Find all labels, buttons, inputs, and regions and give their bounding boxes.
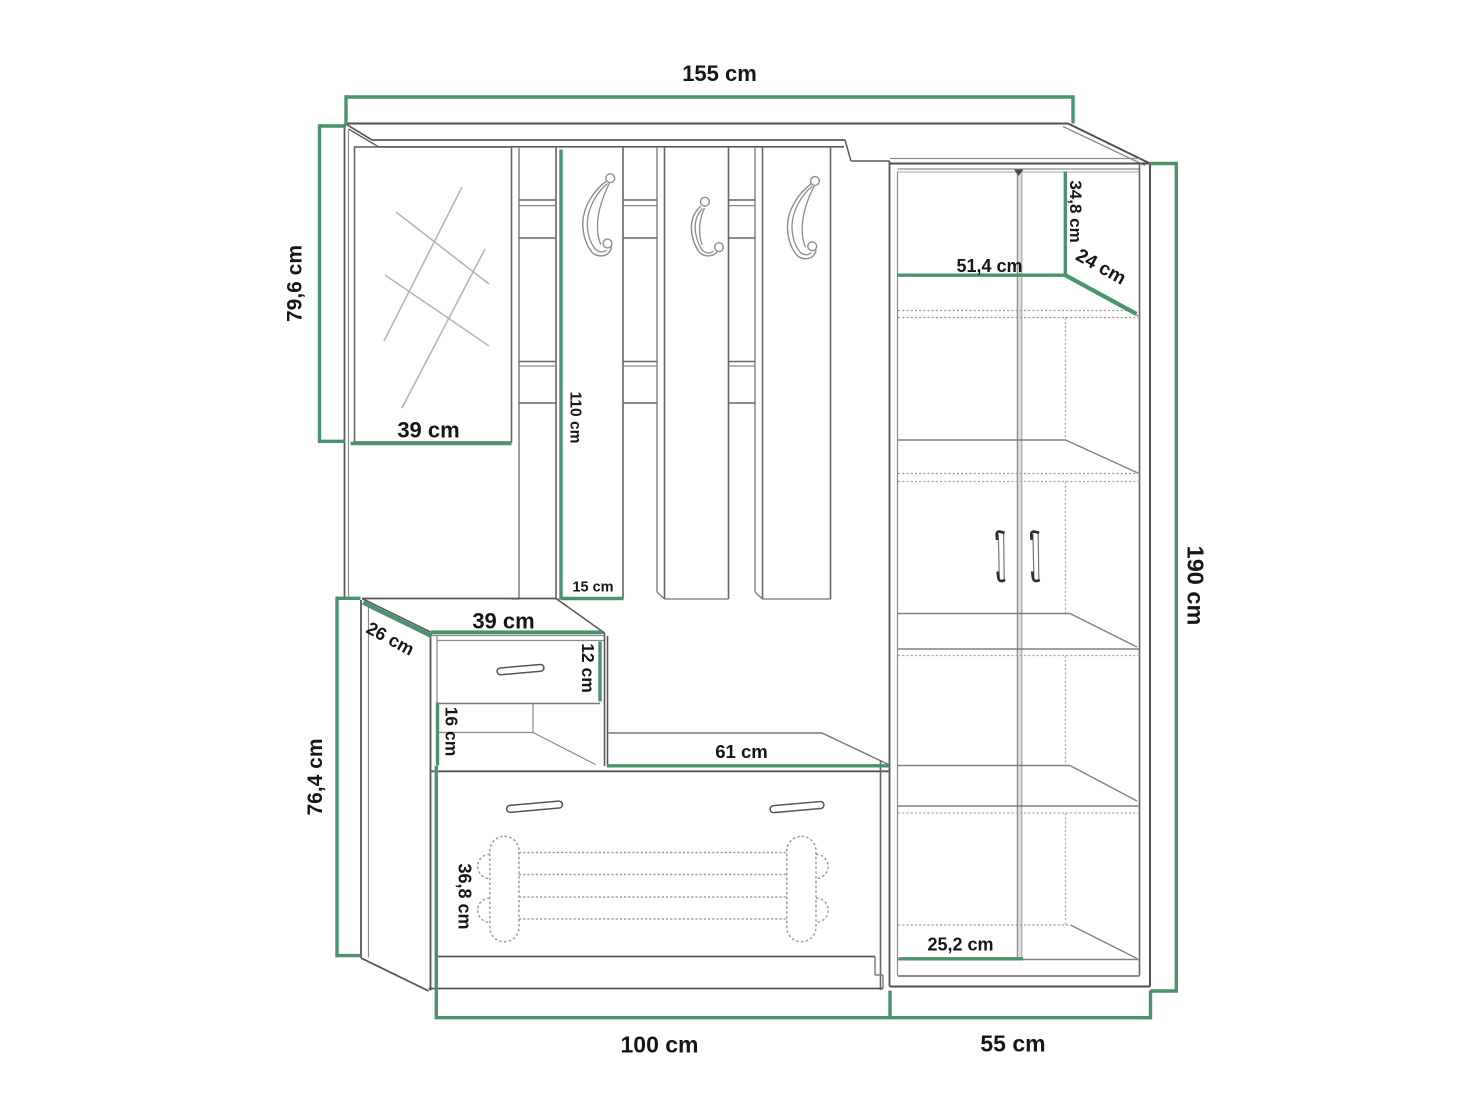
svg-text:76,4 cm: 76,4 cm bbox=[304, 738, 327, 815]
svg-text:61 cm: 61 cm bbox=[715, 741, 767, 762]
svg-text:39 cm: 39 cm bbox=[472, 609, 534, 634]
svg-text:79,6 cm: 79,6 cm bbox=[284, 245, 307, 322]
svg-text:36,8 cm: 36,8 cm bbox=[455, 863, 475, 929]
svg-text:100 cm: 100 cm bbox=[620, 1032, 698, 1058]
svg-text:15 cm: 15 cm bbox=[572, 580, 613, 596]
svg-text:55 cm: 55 cm bbox=[980, 1031, 1045, 1057]
svg-text:25,2 cm: 25,2 cm bbox=[927, 935, 993, 955]
svg-text:12 cm: 12 cm bbox=[578, 643, 598, 693]
svg-text:155 cm: 155 cm bbox=[682, 61, 757, 86]
svg-text:16 cm: 16 cm bbox=[442, 707, 462, 757]
svg-text:190 cm: 190 cm bbox=[1183, 546, 1209, 626]
svg-text:39 cm: 39 cm bbox=[397, 418, 459, 443]
svg-text:51,4 cm: 51,4 cm bbox=[956, 256, 1022, 276]
svg-text:34,8 cm: 34,8 cm bbox=[1066, 180, 1085, 242]
svg-text:110 cm: 110 cm bbox=[567, 392, 584, 444]
